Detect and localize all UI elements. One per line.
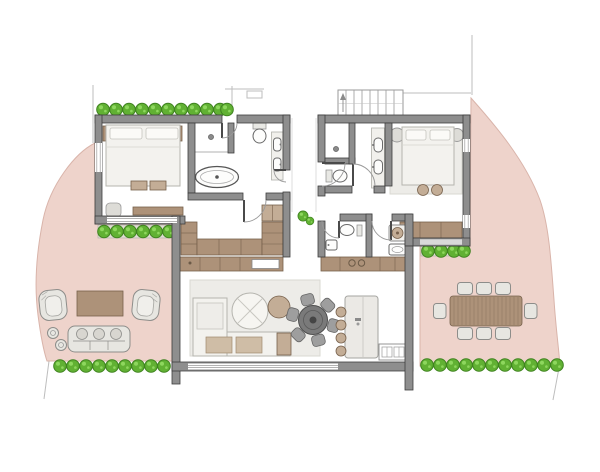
wall-hung-toilet xyxy=(253,123,266,143)
sink xyxy=(374,160,383,174)
wall-segment xyxy=(172,216,180,384)
bar-stool xyxy=(336,307,346,317)
outdoor-dining-table xyxy=(450,296,522,326)
wicker-armchair-right xyxy=(131,289,161,322)
wall-segment xyxy=(405,214,413,246)
seat-cushion xyxy=(206,337,232,353)
wall-segment xyxy=(95,115,222,123)
wall-hung-toilet xyxy=(340,225,362,237)
wall-segment xyxy=(318,221,325,257)
outdoor-chair xyxy=(525,304,538,319)
wall-segment xyxy=(237,115,290,123)
floor-plan-drawing xyxy=(0,0,600,472)
canopy-bush xyxy=(221,103,234,116)
kitchen-rear-cabinet xyxy=(321,257,407,271)
window xyxy=(463,215,470,228)
seat-cushion xyxy=(236,337,262,353)
desk xyxy=(133,207,183,215)
wall-hung-toilet xyxy=(326,170,347,182)
pouf xyxy=(418,185,429,196)
bench-cushion xyxy=(131,181,147,190)
pillow xyxy=(406,130,426,140)
outdoor-chair xyxy=(496,328,511,340)
island-faucet xyxy=(355,318,361,321)
exterior-staircase xyxy=(338,90,403,117)
sliding-door-glazing xyxy=(107,217,177,223)
pillow xyxy=(430,130,450,140)
outdoor-chair xyxy=(496,283,511,295)
window xyxy=(463,139,470,152)
living-sideboard xyxy=(179,257,283,271)
round-coffee-table xyxy=(232,293,268,329)
wardrobe-left xyxy=(181,222,197,255)
outdoor-chair xyxy=(477,328,492,340)
wall-segment xyxy=(283,115,290,170)
double-bed xyxy=(402,127,454,185)
sink xyxy=(374,138,383,152)
wall-segment xyxy=(366,214,372,257)
shower-drain xyxy=(208,134,213,139)
window xyxy=(95,143,102,172)
wall-segment xyxy=(318,186,325,196)
wall-segment xyxy=(318,115,325,162)
bar-stool xyxy=(336,346,346,356)
terrace-side-table-1 xyxy=(48,328,59,339)
floor-plan-canvas xyxy=(0,0,600,472)
bench-cushion xyxy=(150,181,166,190)
wicker-armchair-left xyxy=(38,289,68,322)
hedge-row-east-planter xyxy=(422,245,471,258)
sliding-door-glazing xyxy=(188,364,338,370)
wall-segment xyxy=(188,123,195,193)
wall-segment xyxy=(374,186,385,193)
pouf xyxy=(432,185,443,196)
pillow xyxy=(146,128,178,139)
hedge-row-bottom-east xyxy=(421,359,564,372)
outdoor-chair xyxy=(458,283,473,295)
hedge-row-bottom-west xyxy=(54,360,171,373)
sliding-door-glazing xyxy=(420,240,462,245)
bathtub xyxy=(196,167,239,188)
pillow xyxy=(110,128,142,139)
wall-segment xyxy=(325,186,352,193)
wall-segment xyxy=(283,192,290,257)
wall-segment xyxy=(349,123,355,164)
chair xyxy=(106,203,121,217)
sofa-armrest xyxy=(277,333,291,355)
bar-stool xyxy=(336,320,346,330)
utility-sink xyxy=(389,244,406,255)
outdoor-sofa xyxy=(68,326,130,352)
fireplace-insert xyxy=(252,260,279,269)
kitchen-island xyxy=(345,296,378,358)
double-vanity xyxy=(272,132,284,180)
terrace-side-table-2 xyxy=(56,340,67,351)
shower-drain xyxy=(333,146,338,151)
wardrobe-back xyxy=(197,239,262,255)
double-bed xyxy=(106,125,180,186)
round-dining-table xyxy=(299,306,328,335)
wall-segment xyxy=(228,123,234,153)
outdoor-chair xyxy=(458,328,473,340)
bar-stool xyxy=(336,333,346,343)
wardrobe-right xyxy=(262,222,283,255)
wall-segment xyxy=(188,193,243,200)
outdoor-chair xyxy=(477,283,492,295)
terrace-coffee-table xyxy=(77,291,123,316)
double-sink-unit xyxy=(379,344,407,360)
wall-segment xyxy=(405,246,413,390)
outdoor-chair xyxy=(434,304,447,319)
wall-segment xyxy=(318,115,470,123)
wall-segment xyxy=(385,123,392,186)
